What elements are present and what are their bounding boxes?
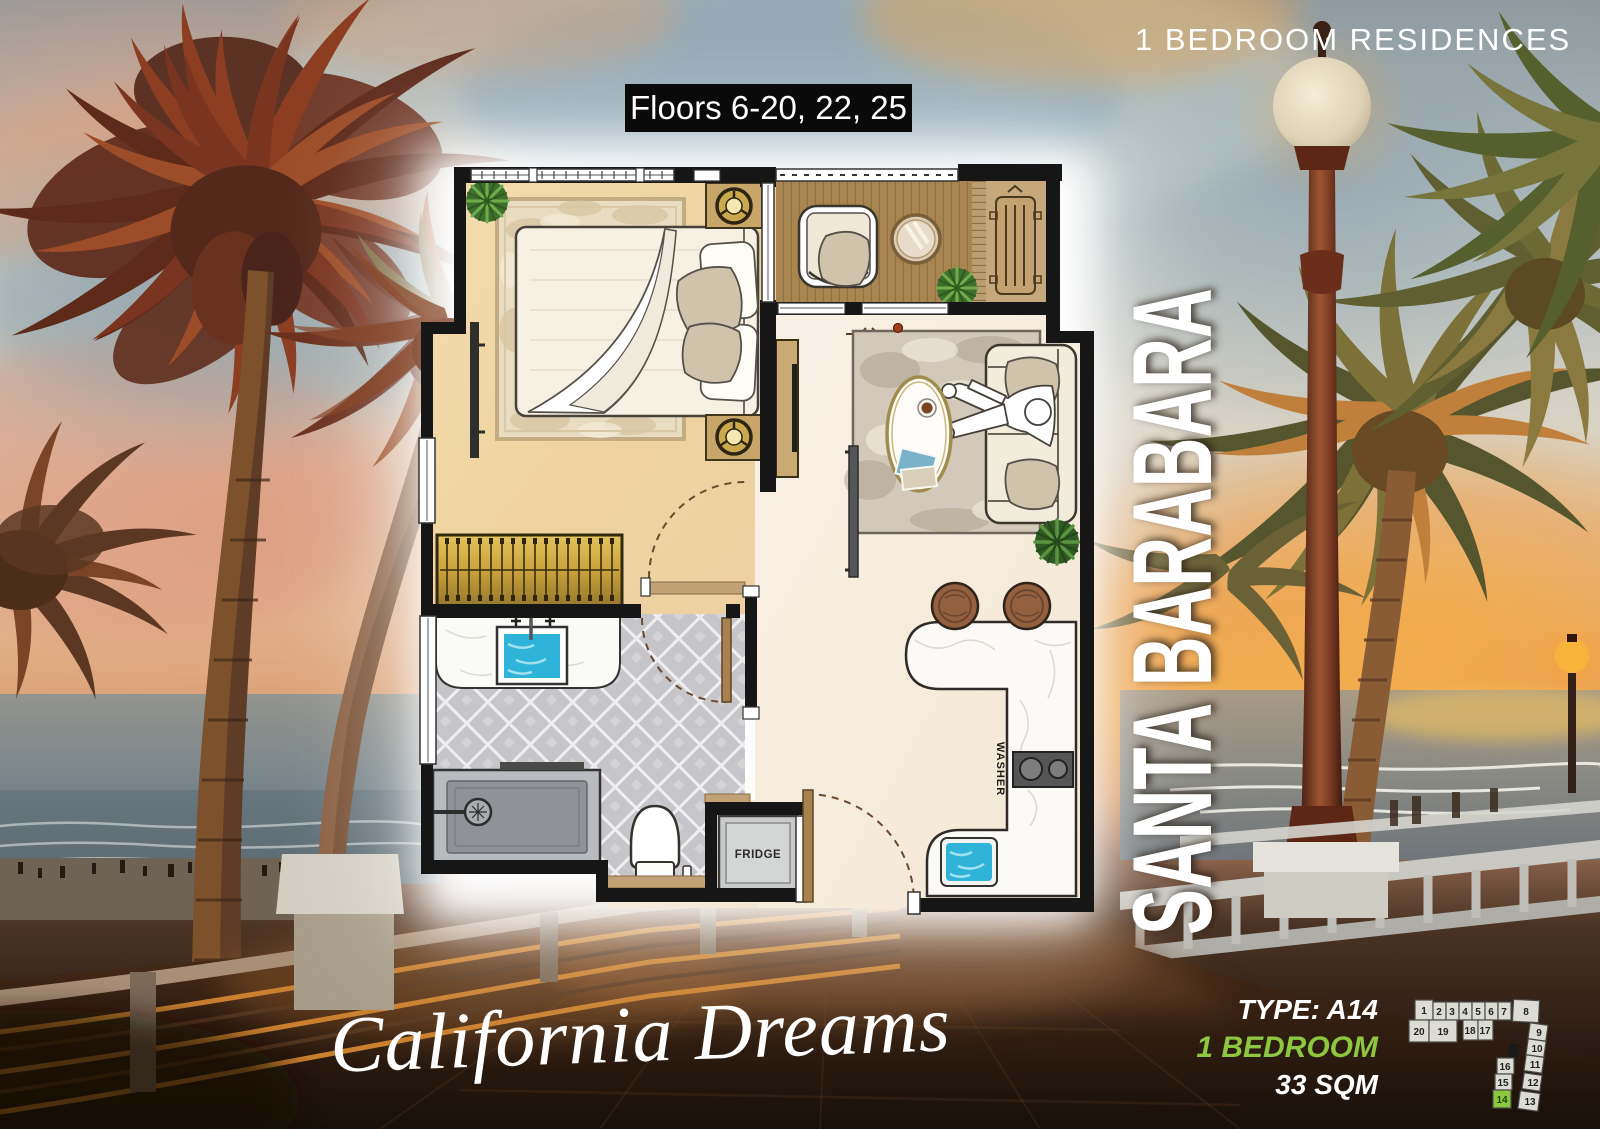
svg-text:16: 16 <box>1499 1062 1511 1073</box>
svg-text:9: 9 <box>1536 1028 1542 1039</box>
svg-text:8: 8 <box>1523 1007 1529 1018</box>
svg-text:10: 10 <box>1531 1044 1543 1055</box>
svg-text:12: 12 <box>1527 1078 1539 1089</box>
svg-text:2: 2 <box>1436 1007 1442 1018</box>
svg-text:7: 7 <box>1501 1007 1507 1018</box>
svg-text:FRIDGE: FRIDGE <box>735 849 781 861</box>
svg-text:15: 15 <box>1497 1078 1509 1089</box>
svg-text:20: 20 <box>1413 1027 1425 1038</box>
svg-text:5: 5 <box>1475 1007 1481 1018</box>
svg-text:1: 1 <box>1421 1006 1427 1017</box>
svg-text:4: 4 <box>1462 1007 1468 1018</box>
svg-text:18: 18 <box>1464 1026 1476 1037</box>
svg-text:11: 11 <box>1530 1060 1541 1071</box>
svg-text:6: 6 <box>1488 1007 1494 1018</box>
svg-text:14: 14 <box>1496 1095 1508 1106</box>
svg-text:19: 19 <box>1437 1027 1449 1038</box>
svg-text:17: 17 <box>1479 1026 1491 1037</box>
svg-text:WASHER: WASHER <box>994 742 1006 796</box>
svg-text:13: 13 <box>1524 1097 1536 1108</box>
svg-text:3: 3 <box>1449 1007 1455 1018</box>
